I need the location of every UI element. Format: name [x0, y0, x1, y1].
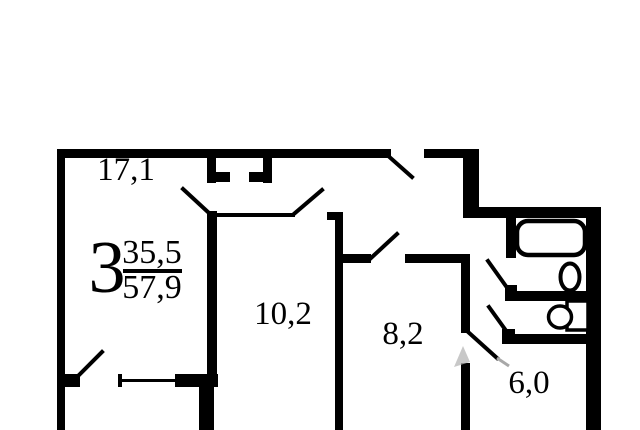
bathroom-fixtures	[517, 221, 588, 330]
wall-room2-room3	[335, 212, 343, 430]
toilet-bowl-icon	[549, 306, 572, 328]
jamb-left-post	[207, 158, 216, 183]
room1-area-label: 17,1	[97, 152, 155, 188]
door-swing-room3	[371, 234, 397, 258]
wall-room1-room2	[207, 211, 217, 387]
floor-plan-drawing: 17,1 10,2 8,2 6,0 3 35,5 57,9	[0, 0, 640, 430]
door-swing-room1-left-leaf	[183, 189, 209, 213]
door-swing-entrance	[386, 154, 412, 177]
wall-room3-kitchen-lower	[461, 363, 470, 430]
door-swing-balcony	[80, 352, 102, 374]
window-glass-line	[122, 379, 175, 382]
wall-bathroom-left	[506, 218, 516, 258]
jamb-left-foot	[216, 172, 230, 182]
double-door-sill	[211, 213, 295, 217]
apartment-rooms-count: 3	[89, 227, 126, 309]
door-swing-bathroom	[488, 261, 508, 289]
wall-entry-corner	[463, 149, 479, 218]
apartment-summary-label: 3 35,5 57,9	[89, 227, 183, 309]
wall-left-exterior	[57, 149, 65, 430]
apartment-living-area: 35,5	[122, 234, 182, 271]
wall-balcony-right	[199, 387, 214, 430]
watermark	[454, 346, 509, 367]
floor-plan: 17,1 10,2 8,2 6,0 3 35,5 57,9	[0, 0, 640, 430]
room2-area-label: 10,2	[254, 296, 312, 332]
wall-room3-top-right	[405, 254, 470, 263]
room3-area-label: 8,2	[382, 316, 423, 352]
kitchen-area-label: 6,0	[508, 365, 549, 401]
sink-icon	[561, 264, 580, 291]
wall-window-right-pier	[175, 374, 218, 387]
wall-window-left-pier	[57, 374, 80, 387]
wall-window-mid-pier	[118, 374, 122, 387]
wall-room3-corridor-upper	[461, 254, 470, 333]
apartment-total-area: 57,9	[122, 269, 182, 306]
wall-room3-top-left	[343, 254, 371, 263]
watermark-line	[497, 358, 509, 366]
wall-toilet-kitchen	[502, 334, 587, 344]
wall-upper-right	[479, 207, 601, 218]
bathtub-icon	[517, 221, 585, 255]
jamb-right-foot	[249, 172, 263, 182]
door-swing-room1-right-leaf	[295, 190, 322, 213]
door-swing-kitchen	[467, 331, 497, 358]
door-swing-toilet	[489, 307, 507, 332]
jamb-right-post	[263, 158, 272, 183]
